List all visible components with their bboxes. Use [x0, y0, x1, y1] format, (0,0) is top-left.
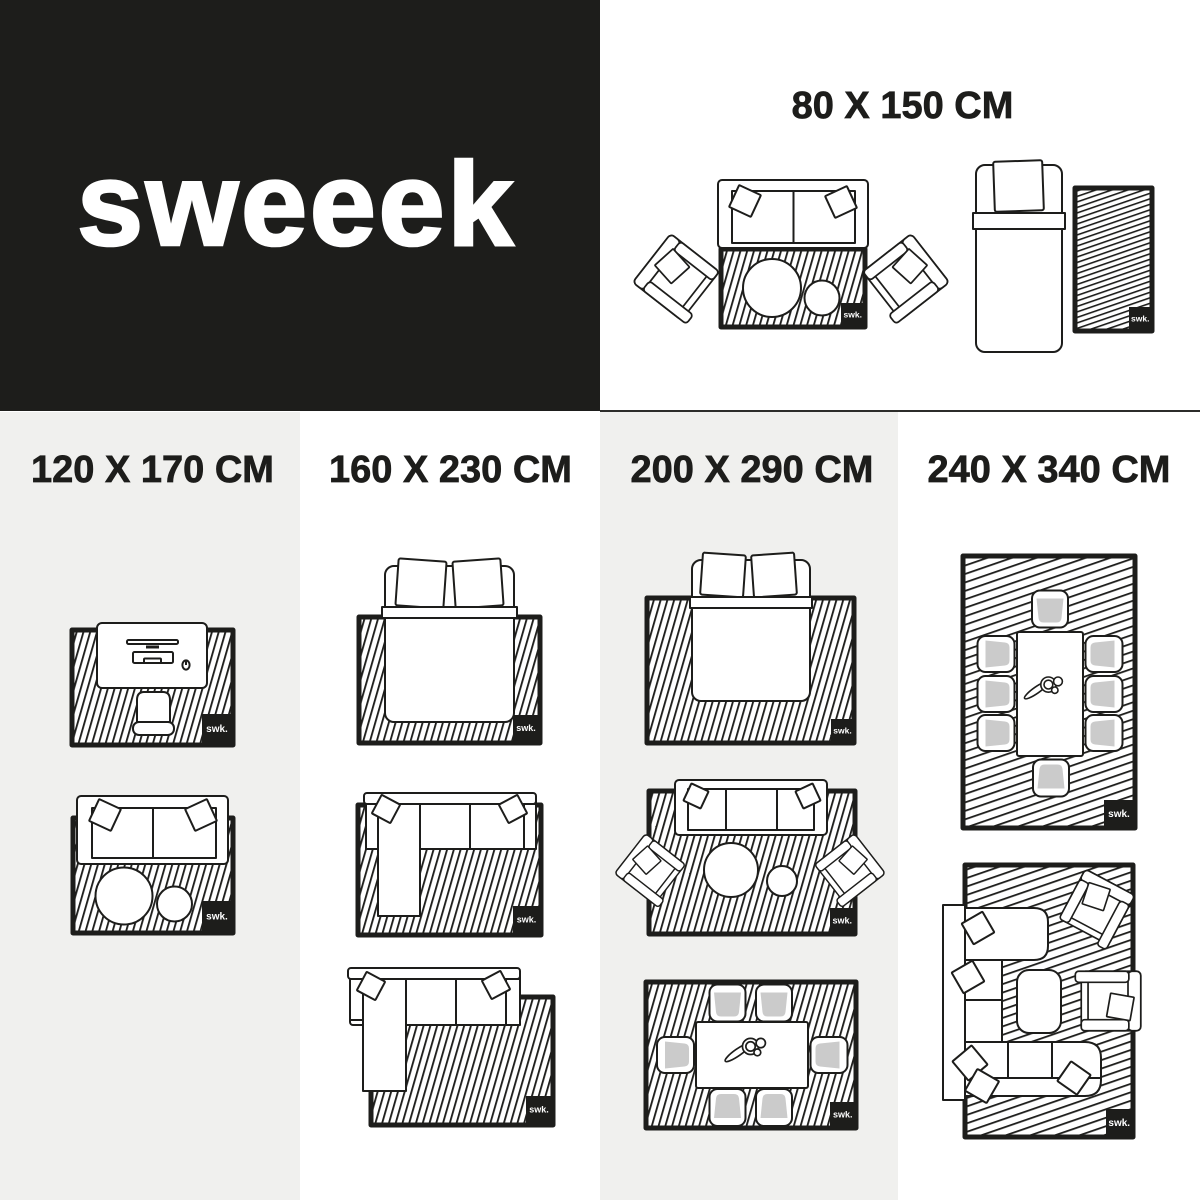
svg-text:swk.: swk.: [516, 723, 536, 733]
svg-text:swk.: swk.: [529, 1105, 549, 1115]
svg-text:120 X 170 CM: 120 X 170 CM: [31, 449, 274, 491]
svg-text:swk.: swk.: [206, 724, 228, 735]
svg-text:swk.: swk.: [517, 915, 537, 925]
svg-text:80 X 150 CM: 80 X 150 CM: [792, 85, 1014, 127]
svg-text:swk.: swk.: [833, 725, 851, 735]
svg-text:swk.: swk.: [1108, 809, 1130, 820]
svg-text:sweeek: sweeek: [77, 138, 516, 271]
svg-text:swk.: swk.: [206, 912, 228, 923]
svg-text:swk.: swk.: [833, 1110, 853, 1120]
svg-text:240 X 340 CM: 240 X 340 CM: [928, 449, 1171, 491]
svg-text:swk.: swk.: [1108, 1118, 1130, 1129]
svg-text:200 X 290 CM: 200 X 290 CM: [631, 449, 874, 491]
svg-text:swk.: swk.: [844, 309, 862, 319]
svg-text:swk.: swk.: [832, 916, 852, 926]
svg-text:swk.: swk.: [1131, 313, 1149, 323]
svg-text:160 X 230 CM: 160 X 230 CM: [329, 449, 572, 491]
